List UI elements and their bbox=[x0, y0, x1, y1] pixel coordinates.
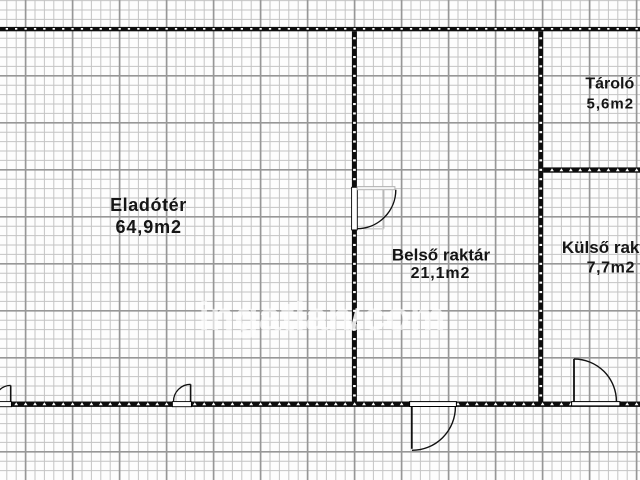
svg-text:Belső raktár: Belső raktár bbox=[392, 246, 491, 265]
svg-text:7,7m2: 7,7m2 bbox=[587, 259, 635, 276]
svg-text:Külső raktár: Külső raktár bbox=[562, 238, 640, 257]
svg-text:5,6m2: 5,6m2 bbox=[587, 95, 635, 112]
svg-text:64,9m2: 64,9m2 bbox=[115, 217, 181, 237]
svg-text:ingatlan.com: ingatlan.com bbox=[199, 295, 446, 339]
svg-text:Tároló: Tároló bbox=[585, 76, 634, 93]
svg-text:Eladótér: Eladótér bbox=[110, 195, 187, 215]
svg-text:21,1m2: 21,1m2 bbox=[411, 265, 471, 282]
